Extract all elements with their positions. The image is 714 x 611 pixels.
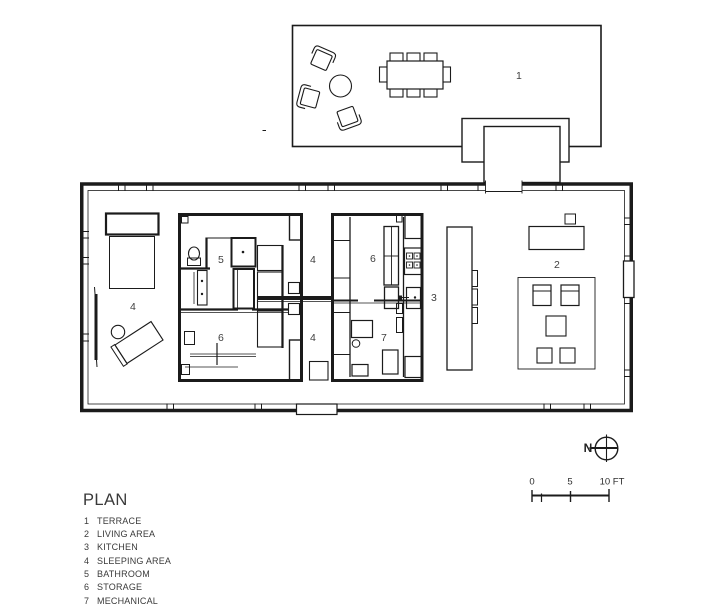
scale-tick-0: 0 [529,477,534,488]
legend-item-living-area: 2 LIVING AREA [0,527,171,540]
curtain [95,287,98,367]
legend: 1 TERRACE 2 LIVING AREA 3 KITCHEN 4 SLEE… [0,514,171,607]
entry-steps [462,119,569,183]
room-label-living: 2 [554,259,560,271]
dining-table [387,61,443,89]
legend-label: TERRACE [97,516,141,526]
bottom-entry-step [297,404,338,415]
room-label-storage-1: 6 [218,332,224,344]
legend-label: SLEEPING AREA [97,556,171,566]
lounge-chair [308,45,337,72]
room-label-kitchen: 3 [431,292,437,304]
room-label-mechanical: 7 [381,332,387,344]
room-label-bathroom: 5 [218,254,224,266]
room-label-sleeping-mid-n: 4 [310,254,316,266]
room-label-terrace: 1 [516,70,522,82]
sliding-door-panel [624,261,635,298]
legend-item-storage: 6 STORAGE [0,581,171,594]
scale-bar [532,489,610,502]
room-label-sleeping-mid-s: 4 [310,332,316,344]
legend-label: MECHANICAL [97,596,158,606]
north-label: N [584,441,593,455]
legend-item-sleeping-area: 4 SLEEPING AREA [0,554,171,567]
legend-num: 3 [84,542,97,552]
legend-num: 2 [84,529,97,539]
lounge-chair [334,105,362,131]
round-side-table [330,75,352,97]
legend-item-mechanical: 7 MECHANICAL [0,594,171,607]
legend-num: 5 [84,569,97,579]
legend-label: BATHROOM [97,569,150,579]
scale-tick-10: 10 FT [600,477,625,488]
room-label-storage-2: 6 [370,253,376,265]
legend-num: 7 [84,596,97,606]
plan-title: PLAN [83,491,128,510]
legend-num: 6 [84,582,97,592]
legend-num: 4 [84,556,97,566]
floor-plan-page: 1 4 5 6 4 6 3 4 7 2 N 0 5 10 FT PLAN 1 T… [0,0,714,611]
north-arrow-icon [590,435,619,463]
room-label-sleeping-west: 4 [130,301,136,313]
scale-tick-5: 5 [567,477,572,488]
legend-item-kitchen: 3 KITCHEN [0,541,171,554]
legend-item-terrace: 1 TERRACE [0,514,171,527]
lounge-chair [296,84,321,111]
legend-label: KITCHEN [97,542,138,552]
legend-label: STORAGE [97,582,142,592]
legend-item-bathroom: 5 BATHROOM [0,567,171,580]
legend-num: 1 [84,516,97,526]
legend-label: LIVING AREA [97,529,155,539]
